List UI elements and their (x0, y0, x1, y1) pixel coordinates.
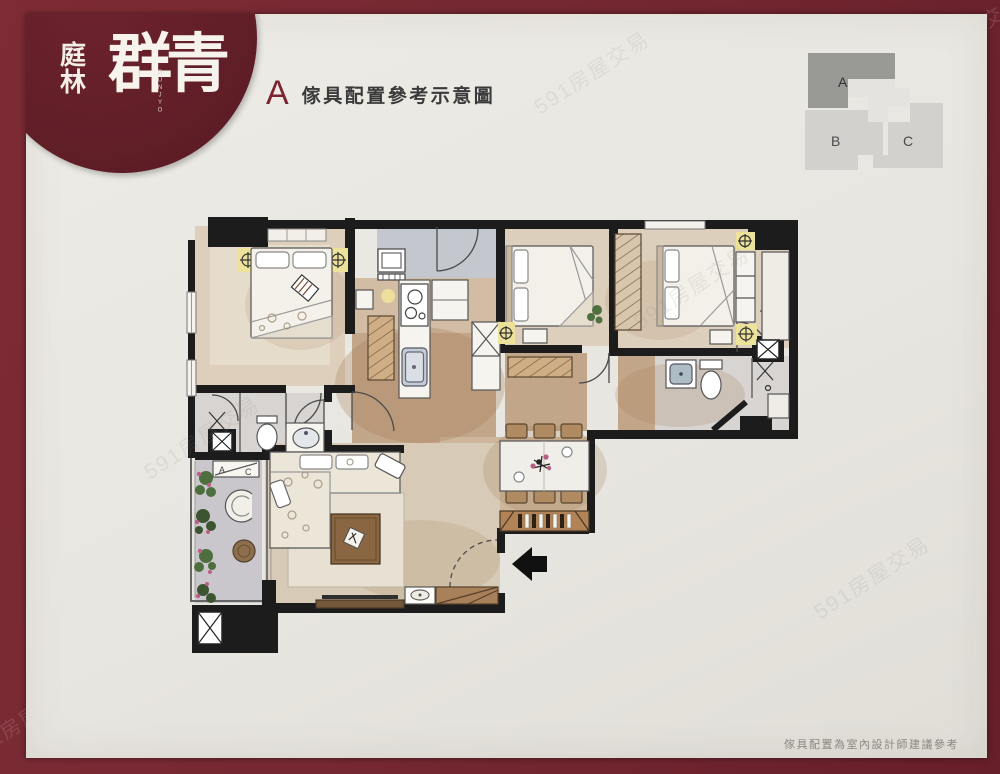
bedroom2-nightstand (523, 329, 547, 343)
entry-arrow-icon (512, 547, 547, 581)
floorplan-drawing: A B C (26, 14, 987, 758)
column-x-bottom-left (198, 612, 222, 644)
svg-text:591房屋交易: 591房屋交易 (530, 27, 654, 119)
window-bedroom3-top (645, 221, 705, 229)
pillow (256, 252, 289, 268)
svg-text:591房屋交易: 591房屋交易 (810, 532, 934, 624)
column-x-right (757, 340, 779, 359)
keyplan-label-b: B (831, 133, 840, 149)
pillow (514, 288, 528, 321)
entry-cabinet (436, 587, 498, 604)
tv (322, 595, 398, 599)
bathroom1-toilet (257, 416, 277, 450)
balcony-stool (233, 540, 255, 562)
keyplan: A B C (805, 53, 943, 170)
ac-label-a: A (219, 465, 225, 475)
sofa-cushion (336, 455, 368, 469)
pillow (293, 252, 326, 268)
plate (514, 472, 524, 482)
balcony-chair (225, 490, 252, 522)
right-closet (762, 252, 789, 340)
coffee-table (331, 514, 380, 564)
master-bedroom (238, 248, 348, 338)
tv-console (316, 600, 404, 608)
sofa-cushion (300, 455, 332, 469)
keyplan-label-a: A (838, 74, 848, 90)
bedroom3-nightstand (710, 330, 732, 344)
plate (562, 447, 572, 457)
dining-chairs-top (506, 424, 582, 438)
kitchen-sink (402, 348, 427, 386)
bathroom1-sink (286, 423, 324, 452)
bathroom2-toilet (700, 360, 722, 399)
pillow (514, 250, 528, 283)
hall-cabinet (472, 322, 500, 390)
kitchen-table (356, 290, 373, 309)
vent (378, 274, 405, 280)
stove (401, 284, 428, 326)
keyplan-label-c: C (903, 133, 913, 149)
ac-label-c: C (245, 467, 252, 477)
pillow (665, 250, 679, 282)
paper-sheet: 庭 林 群青 GUNJYO A 傢具配置參考示意圖 傢具配置為室內設計師建議參考… (26, 14, 987, 758)
shoe-bench (405, 587, 435, 604)
cabinet-master-top (268, 229, 326, 241)
ac-unit: A C (213, 461, 259, 477)
bath2-bench (768, 394, 789, 418)
page: { "page": { "frame_color": "#752832", "p… (0, 0, 1000, 774)
wine-cabinet (500, 511, 589, 531)
